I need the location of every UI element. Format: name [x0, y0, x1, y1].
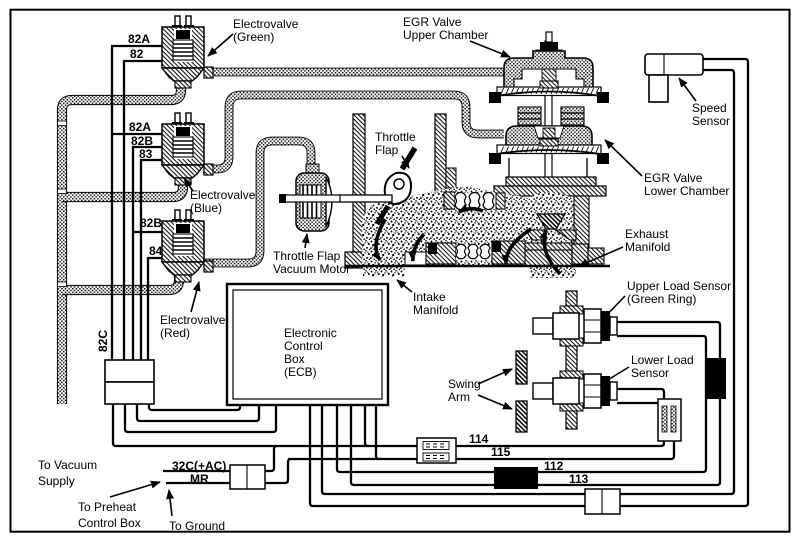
svg-text:82A: 82A	[128, 32, 150, 46]
svg-text:82: 82	[130, 47, 144, 61]
svg-text:83: 83	[139, 147, 153, 161]
svg-text:(Green Ring): (Green Ring)	[627, 292, 696, 306]
svg-text:Speed: Speed	[692, 101, 727, 115]
svg-text:Swing: Swing	[448, 377, 481, 391]
svg-text:32C(+AC): 32C(+AC)	[172, 459, 226, 473]
svg-text:Electrovalve: Electrovalve	[233, 17, 299, 31]
svg-text:Flap: Flap	[375, 143, 399, 157]
svg-text:Box: Box	[284, 352, 305, 366]
svg-text:Sensor: Sensor	[631, 366, 669, 380]
svg-text:Electrovalve: Electrovalve	[190, 188, 256, 202]
svg-text:Intake: Intake	[413, 290, 446, 304]
svg-text:Lower Load: Lower Load	[631, 353, 694, 367]
svg-text:82A: 82A	[129, 120, 151, 134]
svg-text:Vacuum Motor: Vacuum Motor	[273, 262, 350, 276]
svg-text:Electronic: Electronic	[284, 326, 337, 340]
svg-text:EGR Valve: EGR Valve	[644, 171, 703, 185]
svg-text:Upper Load Sensor: Upper Load Sensor	[627, 279, 731, 293]
svg-text:Electrovalve: Electrovalve	[160, 313, 226, 327]
svg-text:Exhaust: Exhaust	[625, 227, 669, 241]
svg-text:Sensor: Sensor	[692, 114, 730, 128]
svg-text:114: 114	[469, 432, 489, 446]
svg-text:Supply: Supply	[38, 474, 75, 488]
svg-text:To Vacuum: To Vacuum	[38, 458, 97, 472]
svg-text:84: 84	[149, 244, 163, 258]
svg-text:115: 115	[491, 445, 511, 459]
svg-text:Control Box: Control Box	[78, 516, 141, 530]
svg-text:Throttle: Throttle	[375, 130, 416, 144]
svg-text:(Blue): (Blue)	[190, 201, 222, 215]
svg-text:82B: 82B	[140, 216, 162, 230]
svg-text:(Green): (Green)	[233, 30, 274, 44]
svg-text:112: 112	[544, 459, 564, 473]
svg-text:82C: 82C	[96, 330, 110, 352]
svg-text:82B: 82B	[131, 134, 153, 148]
svg-text:EGR Valve: EGR Valve	[403, 15, 462, 29]
svg-text:Throttle Flap: Throttle Flap	[273, 249, 341, 263]
svg-text:Lower Chamber: Lower Chamber	[644, 184, 729, 198]
svg-text:Manifold: Manifold	[625, 240, 670, 254]
svg-text:(ECB): (ECB)	[284, 365, 317, 379]
svg-text:Arm: Arm	[448, 390, 470, 404]
svg-text:113: 113	[569, 472, 589, 486]
svg-text:To Preheat: To Preheat	[78, 500, 137, 514]
svg-text:Upper Chamber: Upper Chamber	[403, 28, 488, 42]
svg-text:MR: MR	[190, 472, 209, 486]
svg-text:Manifold: Manifold	[413, 303, 458, 317]
svg-text:(Red): (Red)	[160, 326, 190, 340]
svg-text:To Ground: To Ground	[169, 519, 225, 533]
svg-text:Control: Control	[284, 339, 323, 353]
